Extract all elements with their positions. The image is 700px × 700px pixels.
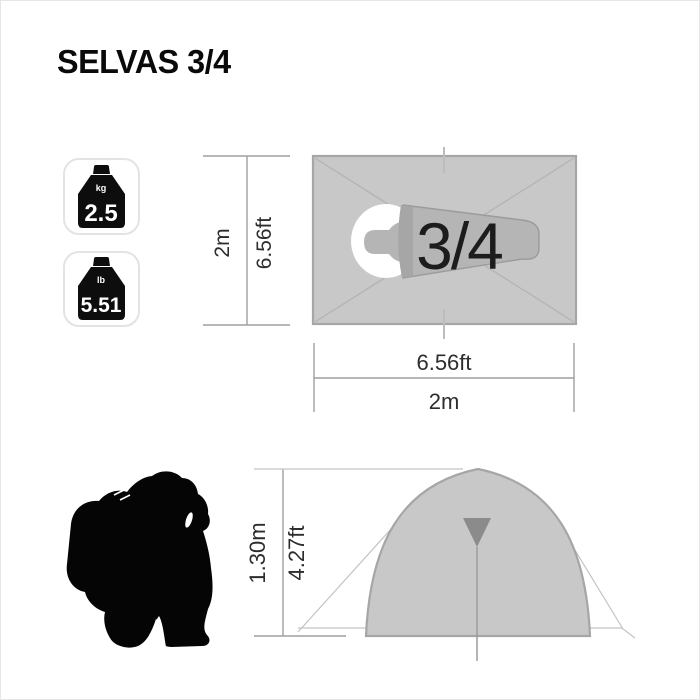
tent-side-view: 1.30m 4.27ft [245,469,635,661]
side-dim-meters: 2m [211,228,234,257]
capacity-label: 3/4 [416,209,502,283]
tent-dome [366,469,590,636]
height-dim-feet: 4.27ft [284,525,309,580]
height-dim-meters: 1.30m [245,522,270,583]
top-view-side-dimension: 2m 6.56ft [203,156,290,325]
weight-kg-unit: kg [96,183,107,193]
weight-kg-value: 2.5 [84,200,117,227]
camper-silhouette [67,471,213,647]
weight-kg-badge: kg 2.5 [64,159,139,234]
spec-diagram: kg 2.5 lb 5.51 3/4 [1,1,700,700]
product-spec-sheet: SELVAS 3/4 kg 2.5 lb 5.51 [0,0,700,700]
sleeping-bag-fold [398,205,413,278]
front-dim-feet: 6.56ft [416,350,471,375]
tent-top-view: 3/4 2m 6.56ft 6.56ft 2m [203,147,576,414]
front-dim-meters: 2m [429,389,460,414]
weight-lb-unit: lb [97,275,106,285]
top-view-front-dimension: 6.56ft 2m [314,343,574,414]
camper-body [67,471,213,647]
side-dim-feet: 6.56ft [253,217,276,270]
weight-lb-badge: lb 5.51 [64,252,139,326]
weight-lb-value: 5.51 [81,294,122,317]
